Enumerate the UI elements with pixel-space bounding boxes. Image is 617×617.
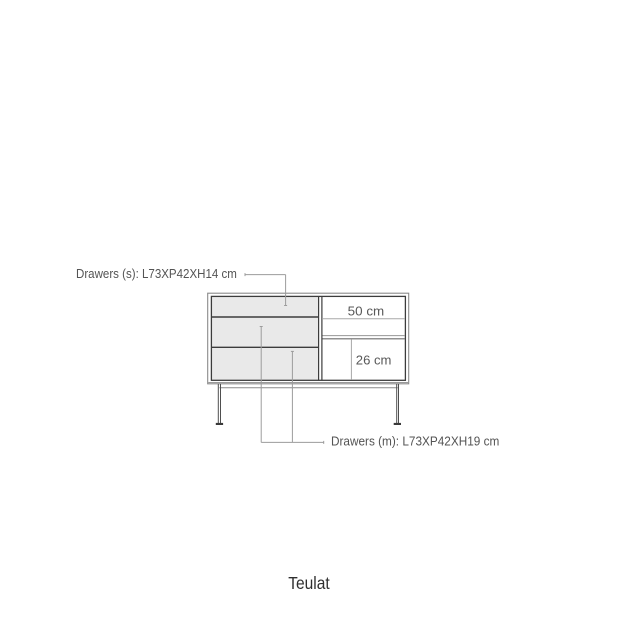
svg-text:Drawers (m): L73XP42XH19 cm: Drawers (m): L73XP42XH19 cm <box>331 433 499 448</box>
svg-text:Drawers (s): L73XP42XH14 cm: Drawers (s): L73XP42XH14 cm <box>76 266 237 281</box>
svg-text:50 cm: 50 cm <box>348 304 385 319</box>
svg-text:Teulat: Teulat <box>288 573 330 593</box>
svg-text:26 cm: 26 cm <box>356 352 392 367</box>
